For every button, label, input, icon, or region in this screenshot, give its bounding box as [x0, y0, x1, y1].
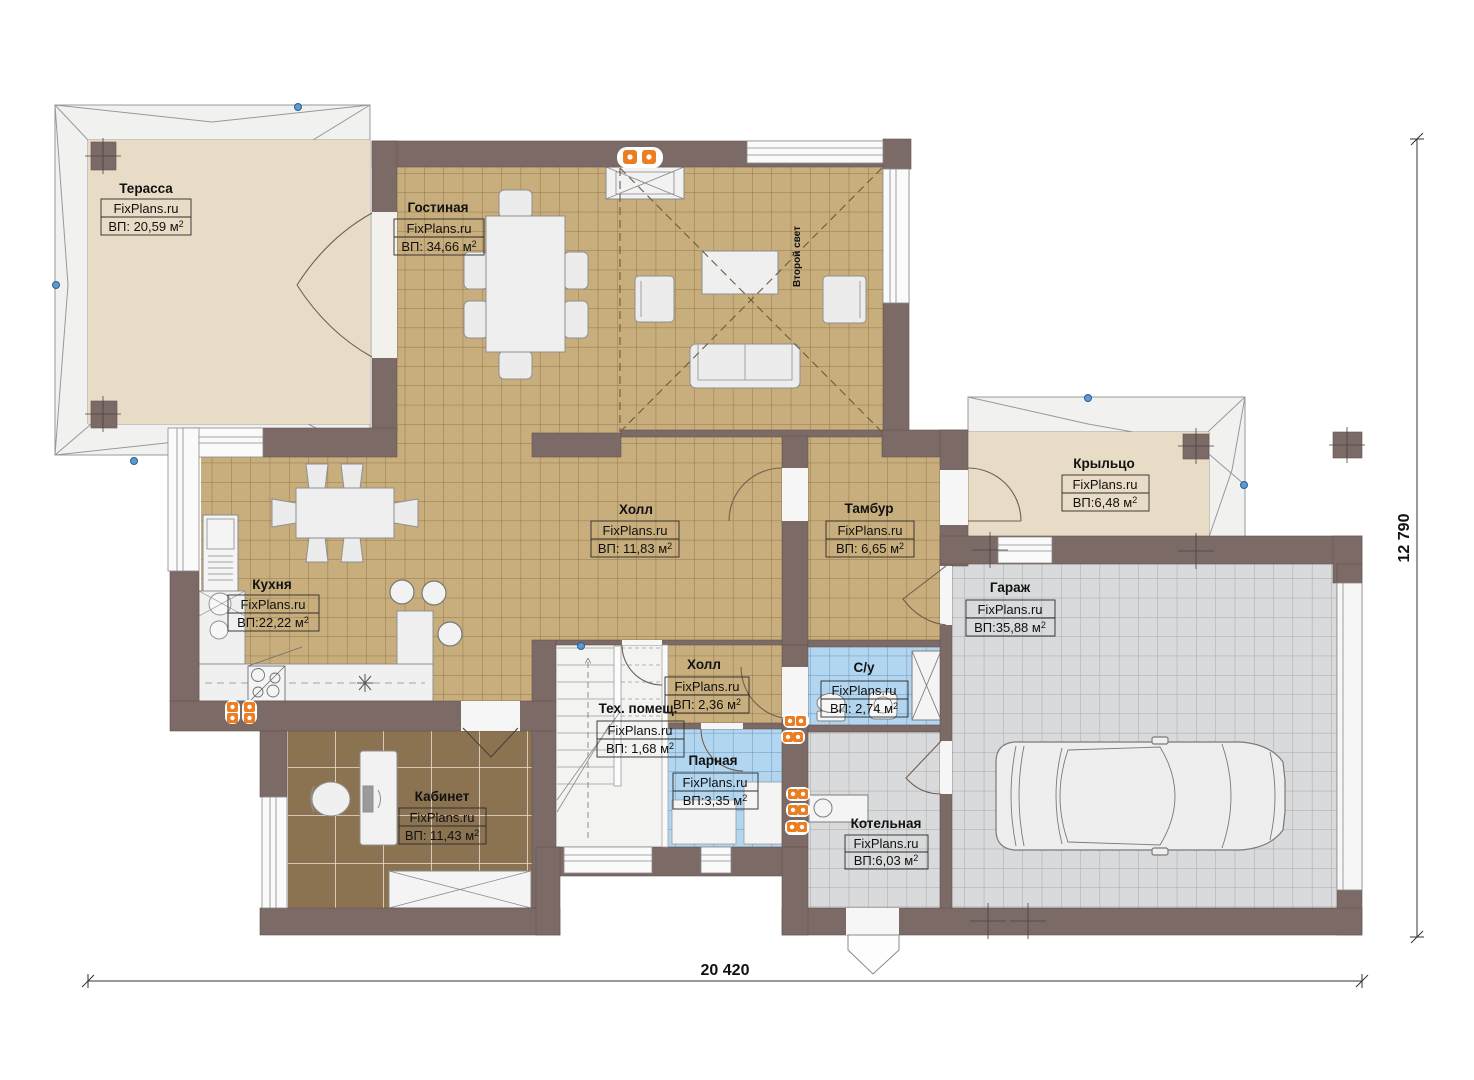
svg-text:ВП: 1,68 м2: ВП: 1,68 м2	[606, 741, 674, 756]
svg-text:FixPlans.ru: FixPlans.ru	[409, 810, 474, 825]
svg-text:Парная: Парная	[689, 753, 738, 768]
svg-text:FixPlans.ru: FixPlans.ru	[406, 221, 471, 236]
svg-text:FixPlans.ru: FixPlans.ru	[977, 602, 1042, 617]
svg-text:FixPlans.ru: FixPlans.ru	[837, 523, 902, 538]
svg-text:FixPlans.ru: FixPlans.ru	[853, 836, 918, 851]
svg-text:FixPlans.ru: FixPlans.ru	[682, 775, 747, 790]
svg-text:Тех. помещ.: Тех. помещ.	[599, 701, 678, 716]
svg-text:ВП:22,22 м2: ВП:22,22 м2	[237, 615, 309, 630]
svg-text:ВП:35,88 м2: ВП:35,88 м2	[974, 620, 1046, 635]
svg-text:Гостиная: Гостиная	[407, 200, 468, 215]
svg-text:20 420: 20 420	[701, 962, 750, 979]
svg-text:Кухня: Кухня	[252, 577, 291, 592]
svg-text:ВП:3,35 м2: ВП:3,35 м2	[683, 793, 748, 808]
svg-text:ВП: 2,36 м2: ВП: 2,36 м2	[673, 697, 741, 712]
svg-text:ВП:6,03 м2: ВП:6,03 м2	[854, 853, 919, 868]
svg-text:Котельная: Котельная	[851, 816, 922, 831]
svg-text:FixPlans.ru: FixPlans.ru	[607, 723, 672, 738]
svg-text:Холл: Холл	[619, 502, 653, 517]
svg-text:FixPlans.ru: FixPlans.ru	[602, 523, 667, 538]
svg-text:Терасса: Терасса	[119, 181, 173, 196]
svg-text:Кабинет: Кабинет	[415, 789, 470, 804]
svg-text:ВП: 11,83 м2: ВП: 11,83 м2	[598, 541, 672, 556]
svg-text:12 790: 12 790	[1396, 513, 1413, 562]
svg-text:Тамбур: Тамбур	[845, 501, 894, 516]
svg-text:ВП: 6,65 м2: ВП: 6,65 м2	[836, 541, 904, 556]
svg-text:FixPlans.ru: FixPlans.ru	[674, 679, 739, 694]
svg-text:ВП: 2,74 м2: ВП: 2,74 м2	[830, 701, 898, 716]
svg-text:FixPlans.ru: FixPlans.ru	[831, 683, 896, 698]
svg-text:FixPlans.ru: FixPlans.ru	[1072, 477, 1137, 492]
svg-text:FixPlans.ru: FixPlans.ru	[240, 597, 305, 612]
svg-text:Крыльцо: Крыльцо	[1073, 456, 1134, 471]
svg-text:С/у: С/у	[853, 660, 875, 675]
svg-text:FixPlans.ru: FixPlans.ru	[113, 201, 178, 216]
svg-text:Гараж: Гараж	[990, 580, 1031, 595]
svg-text:ВП: 11,43 м2: ВП: 11,43 м2	[405, 828, 479, 843]
svg-text:ВП: 34,66 м2: ВП: 34,66 м2	[401, 239, 476, 254]
svg-text:ВП:6,48 м2: ВП:6,48 м2	[1073, 495, 1138, 510]
svg-text:ВП: 20,59 м2: ВП: 20,59 м2	[108, 219, 183, 234]
svg-text:Второй свет: Второй свет	[792, 226, 803, 287]
svg-text:Холл: Холл	[687, 657, 721, 672]
